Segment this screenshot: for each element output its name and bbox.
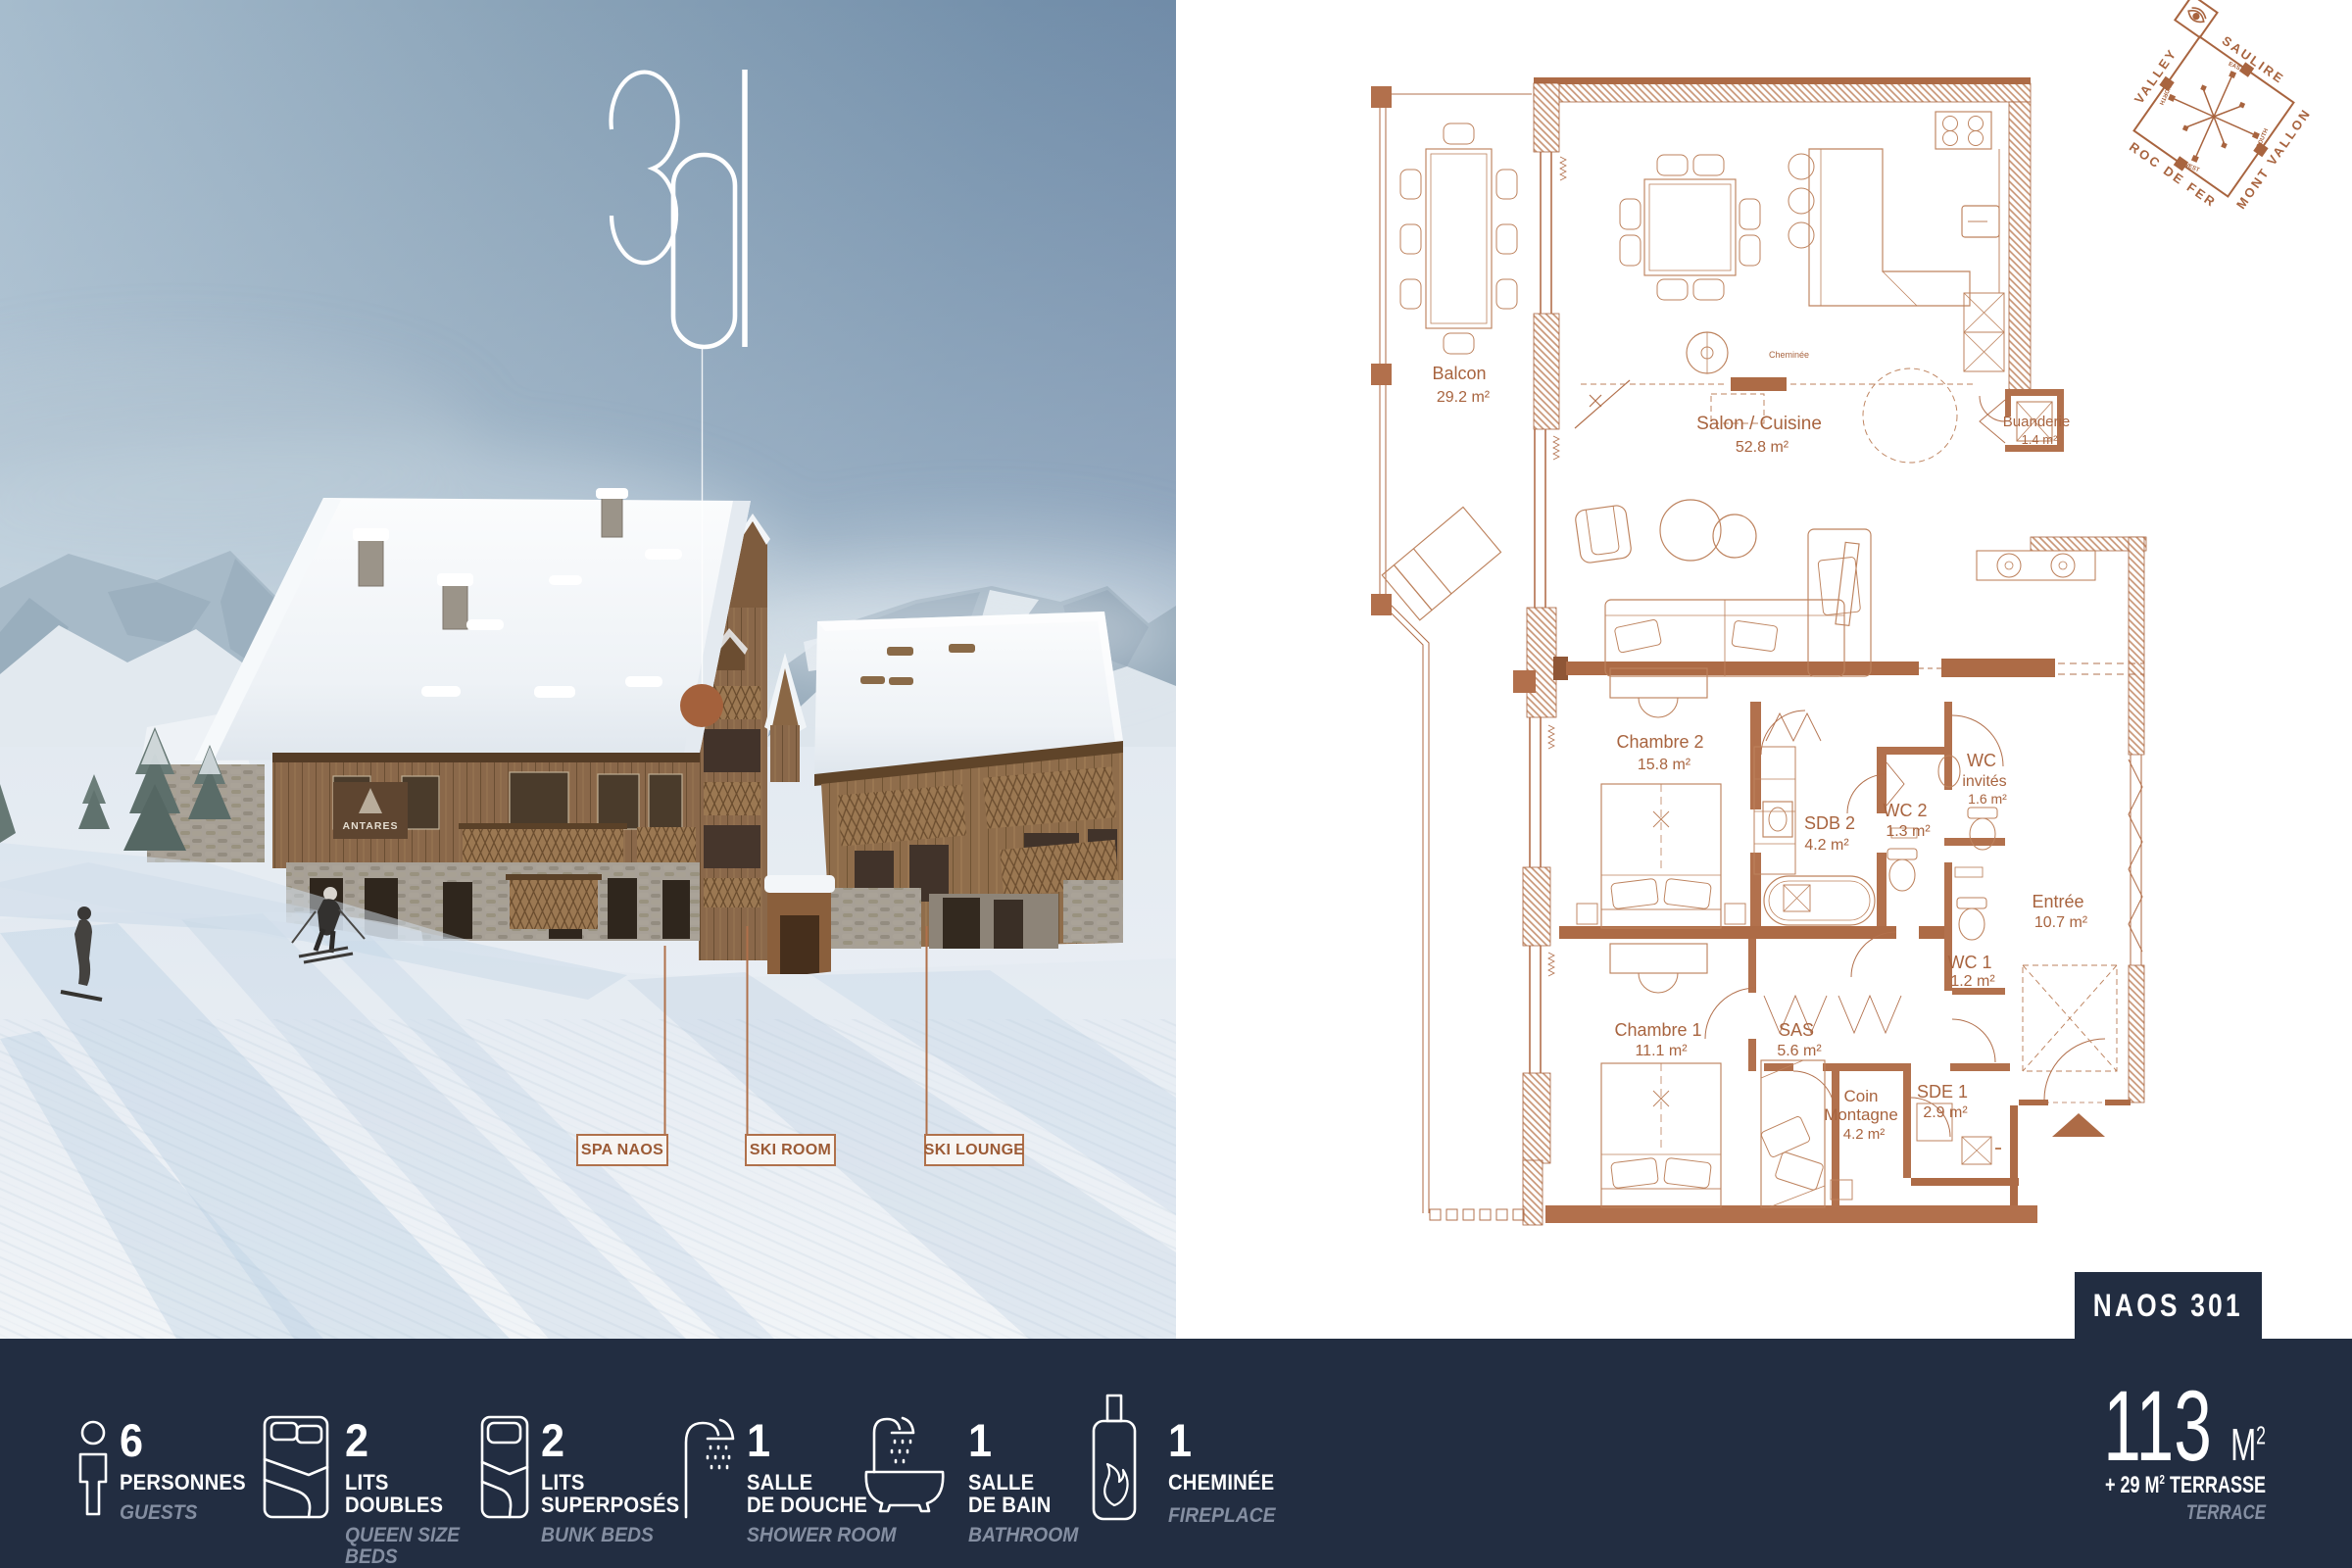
svg-text:4.2 m²: 4.2 m² <box>1804 837 1849 854</box>
svg-text:2.9 m²: 2.9 m² <box>1923 1104 1968 1121</box>
svg-text:ANTARES: ANTARES <box>343 820 399 832</box>
svg-text:10.7 m²: 10.7 m² <box>2034 914 2088 931</box>
svg-text:Chambre 1: Chambre 1 <box>1614 1020 1701 1040</box>
svg-text:MONT VALLON: MONT VALLON <box>2233 106 2314 212</box>
svg-text:invités: invités <box>1962 773 2006 790</box>
svg-text:Cheminée: Cheminée <box>1769 350 1809 360</box>
svg-text:52.8 m²: 52.8 m² <box>1736 439 1789 456</box>
svg-text:SAULIRE: SAULIRE <box>2220 33 2288 87</box>
svg-text:1.2 m²: 1.2 m² <box>1950 973 1995 990</box>
svg-text:Balcon: Balcon <box>1432 364 1486 383</box>
svg-text:ROC DE FER: ROC DE FER <box>2127 139 2220 211</box>
svg-text:1.3 m²: 1.3 m² <box>1886 823 1931 840</box>
svg-text:Chambre 2: Chambre 2 <box>1616 732 1703 752</box>
svg-text:Buanderie: Buanderie <box>2003 414 2070 430</box>
svg-text:29.2 m²: 29.2 m² <box>1437 389 1491 406</box>
svg-text:WC 1: WC 1 <box>1948 953 1992 972</box>
svg-text:Entrée: Entrée <box>2032 892 2083 911</box>
svg-text:WC 2: WC 2 <box>1884 801 1928 820</box>
svg-text:SDB 2: SDB 2 <box>1804 813 1855 833</box>
svg-text:WC: WC <box>1967 751 1996 770</box>
svg-text:1.6 m²: 1.6 m² <box>1968 791 2007 807</box>
svg-text:SDE 1: SDE 1 <box>1917 1082 1968 1102</box>
svg-text:11.1 m²: 11.1 m² <box>1635 1043 1688 1059</box>
svg-text:1.4 m²: 1.4 m² <box>2022 432 2059 447</box>
svg-text:5.6 m²: 5.6 m² <box>1777 1043 1822 1059</box>
svg-text:SAS: SAS <box>1779 1020 1814 1040</box>
svg-text:15.8 m²: 15.8 m² <box>1638 757 1691 773</box>
svg-text:EAST: EAST <box>2228 62 2244 73</box>
svg-text:WEST: WEST <box>2182 162 2201 174</box>
svg-text:4.2 m²: 4.2 m² <box>1843 1126 1886 1143</box>
svg-text:Coin: Coin <box>1844 1087 1879 1105</box>
svg-text:Montagne: Montagne <box>1824 1105 1898 1124</box>
svg-text:Salon / Cuisine: Salon / Cuisine <box>1696 414 1822 434</box>
